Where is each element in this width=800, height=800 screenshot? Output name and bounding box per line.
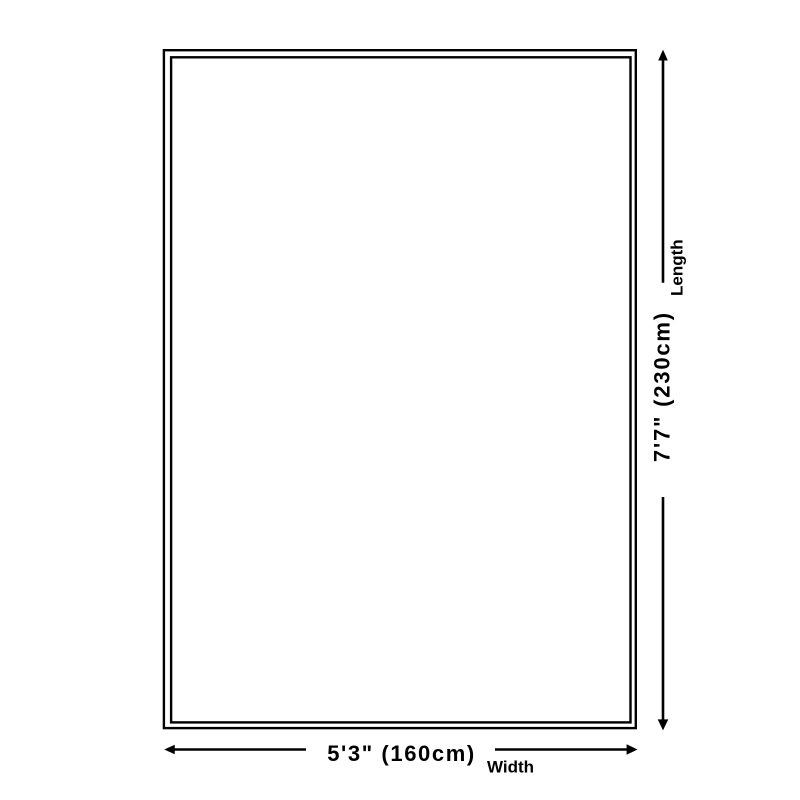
- svg-text:7'7" (230cm): 7'7" (230cm): [649, 311, 674, 462]
- svg-text:5'3" (160cm): 5'3" (160cm): [327, 741, 476, 766]
- svg-text:Length: Length: [667, 239, 686, 296]
- svg-text:Width: Width: [487, 757, 534, 776]
